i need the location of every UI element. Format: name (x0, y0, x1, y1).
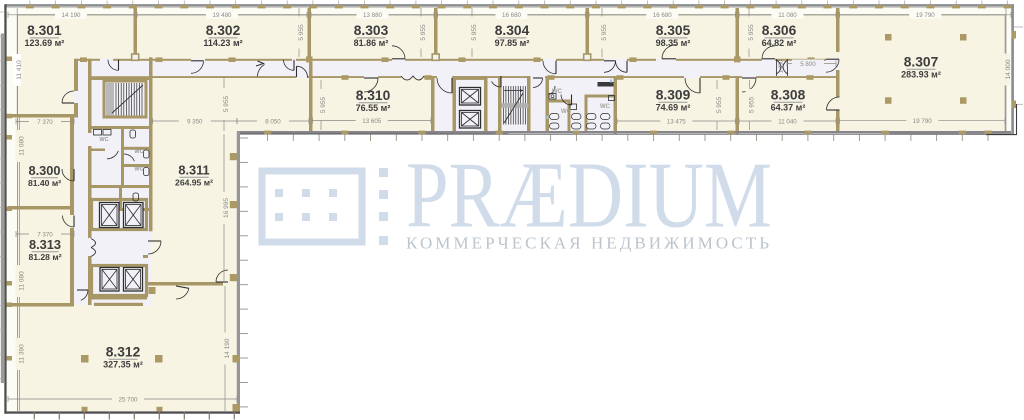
svg-text:64.82 м²: 64.82 м² (762, 38, 797, 48)
svg-text:283.93 м²: 283.93 м² (901, 69, 941, 79)
svg-text:5 955: 5 955 (420, 24, 427, 41)
svg-text:11 390: 11 390 (19, 344, 26, 364)
svg-text:14 190: 14 190 (224, 338, 231, 358)
svg-text:5 955: 5 955 (748, 24, 755, 41)
svg-text:16 995: 16 995 (223, 198, 230, 218)
svg-text:WC: WC (134, 149, 143, 155)
svg-text:5 955: 5 955 (749, 96, 756, 113)
svg-text:8.301: 8.301 (27, 23, 62, 38)
svg-text:11 080: 11 080 (19, 136, 26, 156)
svg-text:14 000: 14 000 (1005, 59, 1012, 79)
svg-text:81.40 м²: 81.40 м² (28, 178, 61, 188)
svg-text:5 955: 5 955 (716, 96, 723, 113)
svg-text:8.302: 8.302 (206, 23, 241, 38)
svg-text:16 680: 16 680 (653, 12, 672, 19)
svg-text:327.35 м²: 327.35 м² (103, 359, 143, 369)
svg-text:25 700: 25 700 (119, 396, 138, 403)
svg-text:9 350: 9 350 (187, 118, 203, 125)
svg-text:8.310: 8.310 (356, 88, 391, 103)
svg-text:264.95 м²: 264.95 м² (175, 177, 213, 187)
svg-text:76.55 м²: 76.55 м² (356, 103, 391, 113)
svg-text:PRÆDIUM: PRÆDIUM (406, 144, 772, 248)
svg-text:8.307: 8.307 (904, 54, 939, 69)
svg-text:123.69 м²: 123.69 м² (25, 38, 65, 48)
svg-text:8.309: 8.309 (656, 88, 691, 103)
svg-text:11 080: 11 080 (778, 12, 797, 19)
svg-text:8.304: 8.304 (495, 23, 530, 38)
svg-text:WC: WC (134, 167, 143, 173)
svg-text:5 955: 5 955 (298, 24, 305, 41)
svg-text:11 410: 11 410 (16, 60, 23, 80)
svg-text:64.37 м²: 64.37 м² (771, 102, 806, 112)
svg-text:19 790: 19 790 (913, 118, 932, 125)
svg-text:8.311: 8.311 (178, 162, 209, 177)
svg-text:8 050: 8 050 (265, 118, 281, 125)
svg-text:7 370: 7 370 (37, 119, 53, 126)
svg-text:13 475: 13 475 (667, 118, 686, 125)
svg-text:WC: WC (552, 89, 563, 95)
svg-text:8.313: 8.313 (29, 237, 61, 252)
svg-text:19 790: 19 790 (916, 12, 935, 19)
svg-text:11 080: 11 080 (19, 271, 26, 291)
svg-text:8.308: 8.308 (771, 88, 806, 103)
svg-text:16 680: 16 680 (502, 12, 521, 19)
svg-text:8.306: 8.306 (762, 23, 797, 38)
svg-text:8.300: 8.300 (28, 163, 60, 178)
svg-text:5 800: 5 800 (800, 61, 816, 68)
svg-text:14 190: 14 190 (62, 12, 81, 19)
svg-text:1 850: 1 850 (779, 60, 785, 73)
svg-text:98.35 м²: 98.35 м² (656, 38, 691, 48)
svg-text:74.69 м²: 74.69 м² (656, 102, 691, 112)
svg-text:11 040: 11 040 (778, 118, 797, 125)
svg-text:13 605: 13 605 (362, 118, 381, 125)
svg-text:81.28 м²: 81.28 м² (28, 252, 61, 262)
svg-text:8.305: 8.305 (656, 23, 691, 38)
svg-text:13 880: 13 880 (363, 12, 382, 19)
svg-text:114.23 м²: 114.23 м² (203, 38, 242, 48)
svg-text:WC: WC (600, 104, 611, 110)
svg-text:5 955: 5 955 (320, 96, 327, 113)
svg-text:19 480: 19 480 (213, 12, 232, 19)
svg-text:WC: WC (561, 109, 572, 115)
svg-text:97.85 м²: 97.85 м² (495, 38, 530, 48)
svg-text:8.312: 8.312 (106, 344, 141, 359)
svg-text:5 955: 5 955 (471, 24, 478, 41)
svg-text:5 955: 5 955 (601, 24, 608, 41)
svg-text:5 955: 5 955 (223, 95, 230, 112)
svg-text:81.86 м²: 81.86 м² (354, 38, 389, 48)
svg-text:8.303: 8.303 (354, 23, 389, 38)
svg-text:WC: WC (99, 137, 108, 143)
